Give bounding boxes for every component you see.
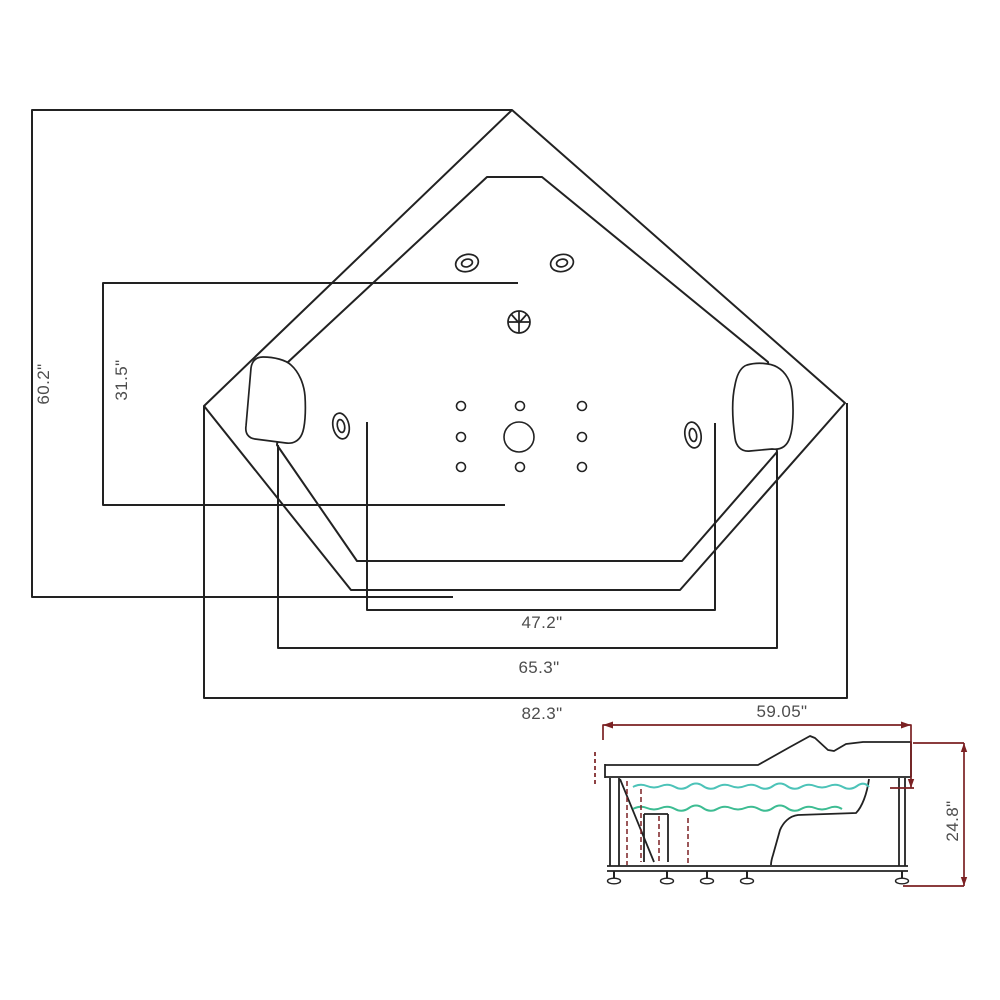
tub-foot [741, 871, 754, 884]
side-dimension-lines [595, 722, 967, 887]
jet-oval-top-right [549, 252, 575, 273]
dimension-label-width-overall: 82.3" [521, 704, 562, 724]
jet-oval-top-left [454, 252, 481, 274]
headrest-left [246, 357, 306, 443]
dimension-line-depth-inner [103, 283, 518, 505]
side-pipe-outline [644, 814, 668, 862]
water-line-upper [633, 784, 869, 789]
tub-foot [896, 871, 909, 884]
top-view [32, 110, 847, 698]
top-view-dimension-lines [32, 110, 847, 698]
tub-foot [701, 871, 714, 884]
water-line-lower [633, 806, 842, 811]
small-jets [457, 402, 587, 472]
pipe-lines-dashed [627, 781, 688, 866]
side-rim-underside [605, 764, 911, 778]
jet-oval-side-right [683, 421, 703, 449]
side-rim-profile [605, 736, 911, 777]
dimension-label-width-inner: 65.3" [518, 658, 559, 678]
tub-feet [608, 871, 909, 884]
dimension-label-depth-inner: 31.5" [112, 359, 132, 400]
tub-foot [661, 871, 674, 884]
side-frame-legs [610, 778, 905, 866]
dimension-label-length-top: 59.05" [757, 702, 808, 722]
side-base-rails [607, 866, 908, 871]
dimension-line-width-front-edge [367, 422, 715, 610]
side-view [595, 722, 967, 887]
dimension-label-height: 24.8" [943, 800, 963, 841]
diagram-linework [0, 0, 1000, 1000]
jet-oval-side-left [330, 412, 351, 441]
side-seat-step [771, 779, 869, 865]
headrest-right [733, 363, 793, 451]
bathtub-spec-diagram: 60.2" 31.5" 47.2" 65.3" 82.3" 59.05" 24.… [0, 0, 1000, 1000]
dimension-label-depth-overall: 60.2" [34, 363, 54, 404]
tub-inner-outline [277, 177, 777, 561]
dimension-arrowheads [603, 722, 967, 887]
dimension-line-length-top [603, 725, 911, 788]
suction-circle [504, 422, 534, 452]
drain-icon [508, 311, 530, 333]
dimension-label-width-front-edge: 47.2" [521, 613, 562, 633]
tub-foot [608, 871, 621, 884]
side-basin-slope [620, 779, 654, 862]
